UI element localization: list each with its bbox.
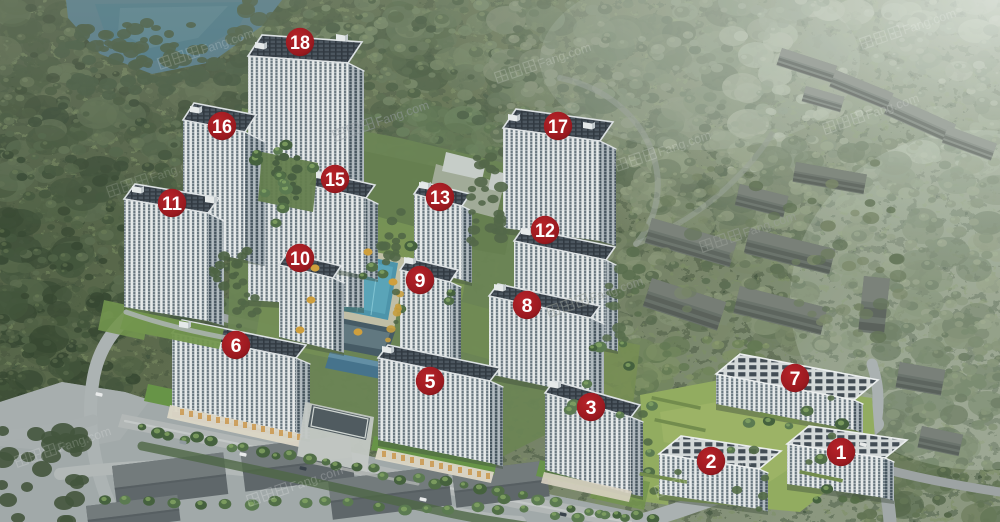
svg-text:7: 7 bbox=[790, 368, 801, 390]
svg-text:5: 5 bbox=[425, 371, 436, 393]
svg-text:9: 9 bbox=[415, 270, 426, 292]
svg-text:11: 11 bbox=[162, 193, 182, 215]
svg-text:17: 17 bbox=[548, 116, 568, 138]
svg-text:6: 6 bbox=[231, 335, 242, 357]
svg-text:12: 12 bbox=[535, 220, 555, 242]
svg-text:16: 16 bbox=[212, 116, 232, 138]
svg-text:15: 15 bbox=[325, 169, 345, 191]
svg-text:10: 10 bbox=[290, 248, 310, 270]
svg-text:8: 8 bbox=[522, 295, 533, 317]
svg-text:3: 3 bbox=[586, 397, 597, 419]
svg-text:18: 18 bbox=[290, 32, 310, 54]
svg-text:13: 13 bbox=[430, 187, 450, 209]
svg-text:2: 2 bbox=[706, 451, 717, 473]
svg-text:1: 1 bbox=[836, 442, 847, 464]
